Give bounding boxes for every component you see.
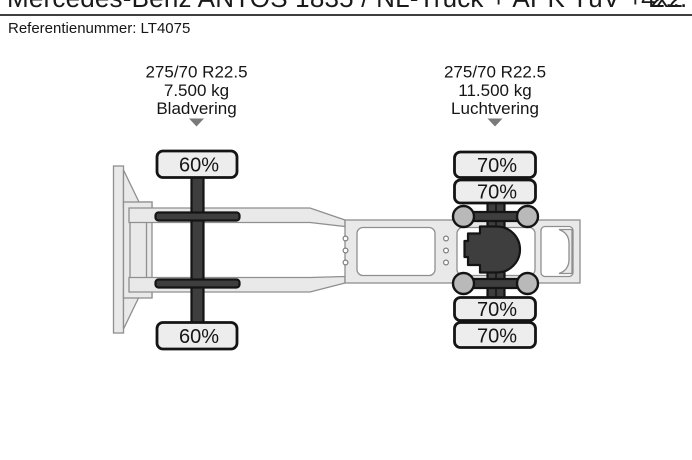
rear-axle-annotation: 275/70 R22.5 11.500 kg Luchtvering: [444, 63, 546, 127]
frame-opening-mid: [357, 228, 435, 276]
tyre-wear-value: 70%: [477, 299, 517, 321]
tyre-wear-value: 60%: [179, 326, 219, 348]
front-axle-annotation: 275/70 R22.5 7.500 kg Bladvering: [145, 63, 247, 127]
front-suspension-type: Bladvering: [156, 99, 236, 118]
rear-axle-pointer-icon: [488, 119, 503, 127]
tyre-wear-value: 70%: [477, 182, 517, 204]
tyre-wear-value: 70%: [477, 326, 517, 348]
front-right-tyre: 60%: [157, 323, 237, 350]
front-axle-pointer-icon: [189, 119, 204, 127]
rear-suspension-type: Luchtvering: [451, 99, 539, 118]
page-title-row: Mercedes-Benz ANTOS 1835 / NL-Truck + AP…: [0, 0, 692, 13]
page-title: Mercedes-Benz ANTOS 1835 / NL-Truck + AP…: [7, 0, 687, 13]
tyre-wear-value: 70%: [477, 155, 517, 177]
front-bumper: [114, 166, 153, 333]
front-axle-load: 7.500 kg: [164, 81, 229, 100]
differential: [465, 227, 521, 273]
header-divider: [0, 14, 692, 16]
rear-left-inner-tyre: 70%: [455, 180, 536, 204]
front-left-tyre: 60%: [157, 151, 237, 178]
front-axle-beam: [192, 168, 204, 332]
drive-configuration-label: 4x2: [641, 0, 683, 13]
axle-configuration-diagram: 275/70 R22.5 7.500 kg Bladvering 275/70 …: [0, 0, 692, 460]
leaf-spring-bottom: [156, 280, 240, 288]
leaf-spring-top: [156, 213, 240, 221]
air-bellow-icon: [517, 206, 538, 227]
tyre-wear-value: 60%: [179, 155, 219, 177]
front-tyre-size: 275/70 R22.5: [145, 63, 247, 82]
rear-right-outer-tyre: 70%: [455, 323, 536, 348]
rear-tyre-size: 275/70 R22.5: [444, 63, 546, 82]
air-bellow-icon: [517, 273, 538, 294]
reference-number: Referentienummer: LT4075: [8, 21, 190, 37]
listing-axle-diagram-page: Mercedes-Benz ANTOS 1835 / NL-Truck + AP…: [0, 0, 692, 460]
air-bellow-icon: [453, 206, 474, 227]
air-bellow-icon: [453, 273, 474, 294]
rear-right-inner-tyre: 70%: [455, 298, 536, 322]
front-axle-assembly: [156, 168, 240, 332]
rear-axle-load: 11.500 kg: [458, 81, 531, 100]
rear-left-outer-tyre: 70%: [455, 152, 536, 178]
